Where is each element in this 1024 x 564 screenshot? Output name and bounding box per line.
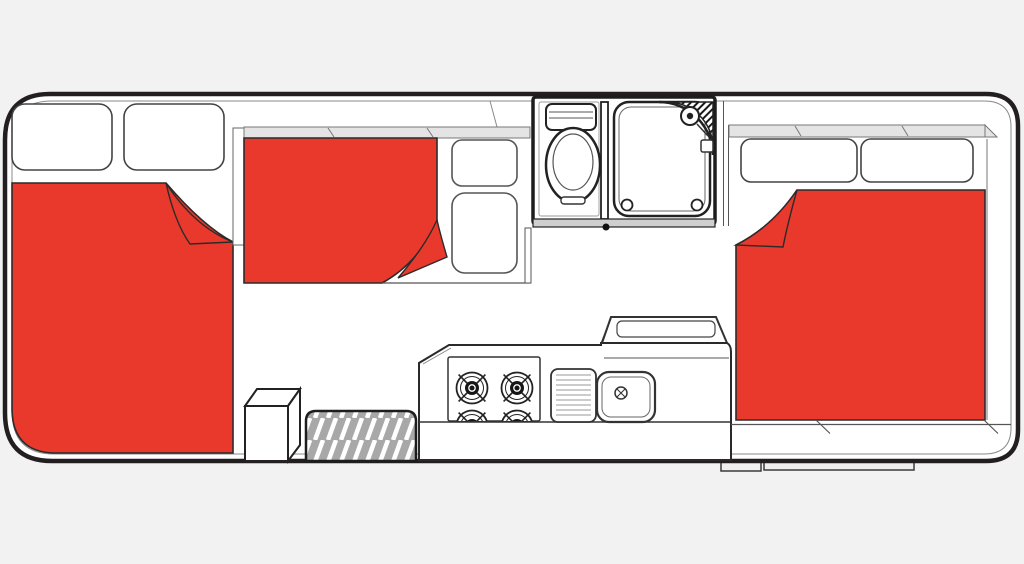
sink-drainer [551,369,596,422]
dinette-bed-blanket [244,138,437,283]
toilet-base [561,197,585,204]
toilet-icon [546,104,600,204]
shelf-band [244,127,530,138]
dinette-side-panel [525,228,531,283]
rear-overhead-shelf [729,125,997,137]
sink [597,372,655,422]
front-bed-pillow-left [12,104,112,170]
bathroom-door-pivot [603,224,610,231]
dinette-cushion-top [452,140,517,186]
front-bed-pillow-right [124,104,224,170]
shower-head-dot [687,113,693,119]
front-bed-partition [233,128,244,245]
rear-bed [724,101,1012,434]
shower-drain-right [692,200,703,211]
entry-door-mat [306,411,416,461]
stove-burner [457,373,488,404]
front-bed [12,104,244,453]
bathroom-partition [601,102,608,219]
bathroom-bottom-wall [533,219,715,227]
floorplan-stage [0,0,1024,564]
entry-step-box [245,389,300,461]
dinette [244,127,531,283]
rear-bed-pillow-right [861,139,973,182]
rear-bed-pillow-left [741,139,857,182]
shower-drain-left [622,200,633,211]
step-box-front [245,406,288,461]
floorplan-canvas [0,0,1024,564]
kitchen-bench [602,317,727,343]
dinette-cushion-bottom [452,193,517,273]
dinette-overhead-shelf [244,127,530,138]
shower-cubicle [614,102,713,216]
stove-burner [502,373,533,404]
bathroom [533,97,715,231]
toilet-bowl [546,128,600,202]
toilet-cistern [546,104,596,130]
soap-shelf [701,140,713,152]
shelf-band [729,125,985,137]
bench-lid [617,321,715,337]
